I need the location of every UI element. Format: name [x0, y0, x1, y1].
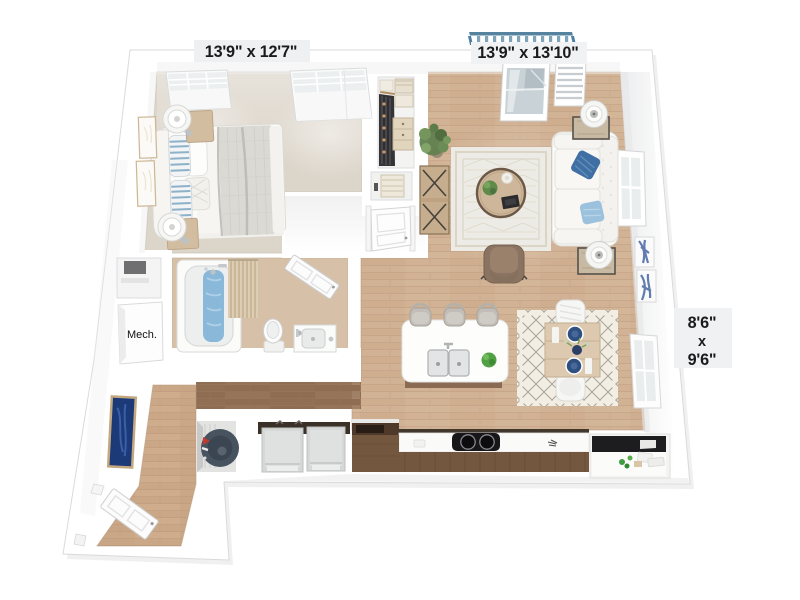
svg-text:x: x — [698, 334, 706, 350]
svg-text:9'6": 9'6" — [688, 351, 717, 369]
svg-text:13'9" x 12'7": 13'9" x 12'7" — [205, 43, 297, 61]
svg-text:8'6": 8'6" — [688, 314, 717, 332]
svg-text:13'9" x 13'10": 13'9" x 13'10" — [477, 44, 578, 62]
svg-text:Mech.: Mech. — [127, 329, 157, 341]
